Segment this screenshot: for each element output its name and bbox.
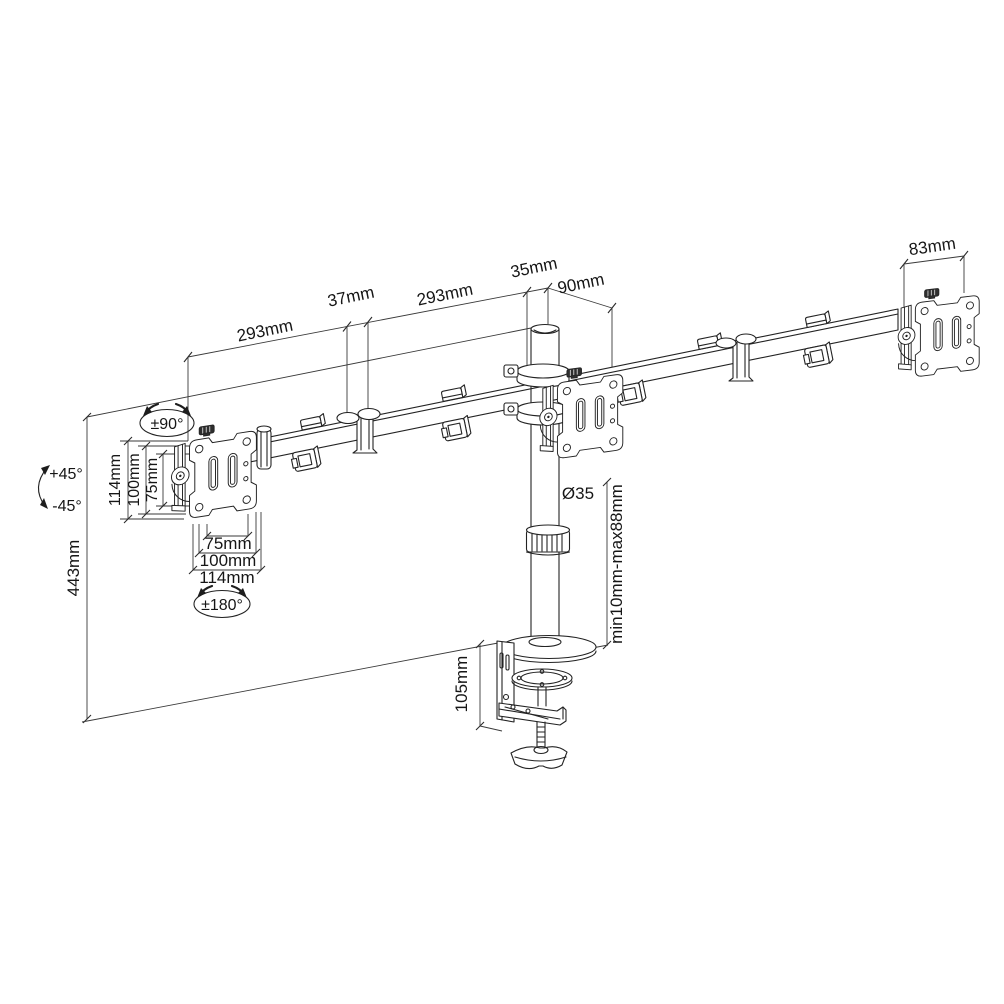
pole-diameter-label: Ø35 <box>562 484 594 503</box>
clamp-foot <box>511 747 567 769</box>
clamp-range-label: min10mm-max88mm <box>607 484 626 644</box>
height-adjust-collar <box>527 525 570 555</box>
left-arm-hinge <box>257 426 271 469</box>
drawing-canvas: 293mm 37mm 293mm 35mm 90mm 83mm ±90° +45… <box>0 0 1004 1004</box>
dim-arm-left-label: 293mm <box>235 316 294 346</box>
column-height-label: 443mm <box>64 540 83 597</box>
right-vesa-plate <box>898 283 979 379</box>
tilt-up-label: +45° <box>49 466 83 483</box>
vesa-vertical-114-label: 114mm <box>107 454 124 506</box>
dim-mid-joint-label: 37mm <box>326 283 376 311</box>
triple-monitor-mount-technical-drawing: 293mm 37mm 293mm 35mm 90mm 83mm ±90° +45… <box>0 0 1004 1004</box>
clamp-height-label: 105mm <box>452 656 471 713</box>
swivel-range-label: ±90° <box>151 416 184 433</box>
tilt-down-label: -45° <box>52 498 82 515</box>
clamp-top-plate <box>502 636 596 659</box>
vesa-vertical-75-label: 75mm <box>144 458 161 502</box>
dim-pole-cap-label: 35mm <box>509 254 559 282</box>
vesa-vertical-100-label: 100mm <box>126 453 143 506</box>
mount-hardware <box>171 283 979 768</box>
desk-clamp <box>497 636 596 769</box>
dim-arm-right-label: 293mm <box>415 280 474 310</box>
dim-head-offset-label: 90mm <box>556 270 606 298</box>
vesa-horizontal-114-label: 114mm <box>199 568 254 587</box>
rotation-range-label: ±180° <box>201 597 243 614</box>
pole-cap <box>531 325 559 334</box>
dim-plate-width-label: 83mm <box>908 234 957 259</box>
